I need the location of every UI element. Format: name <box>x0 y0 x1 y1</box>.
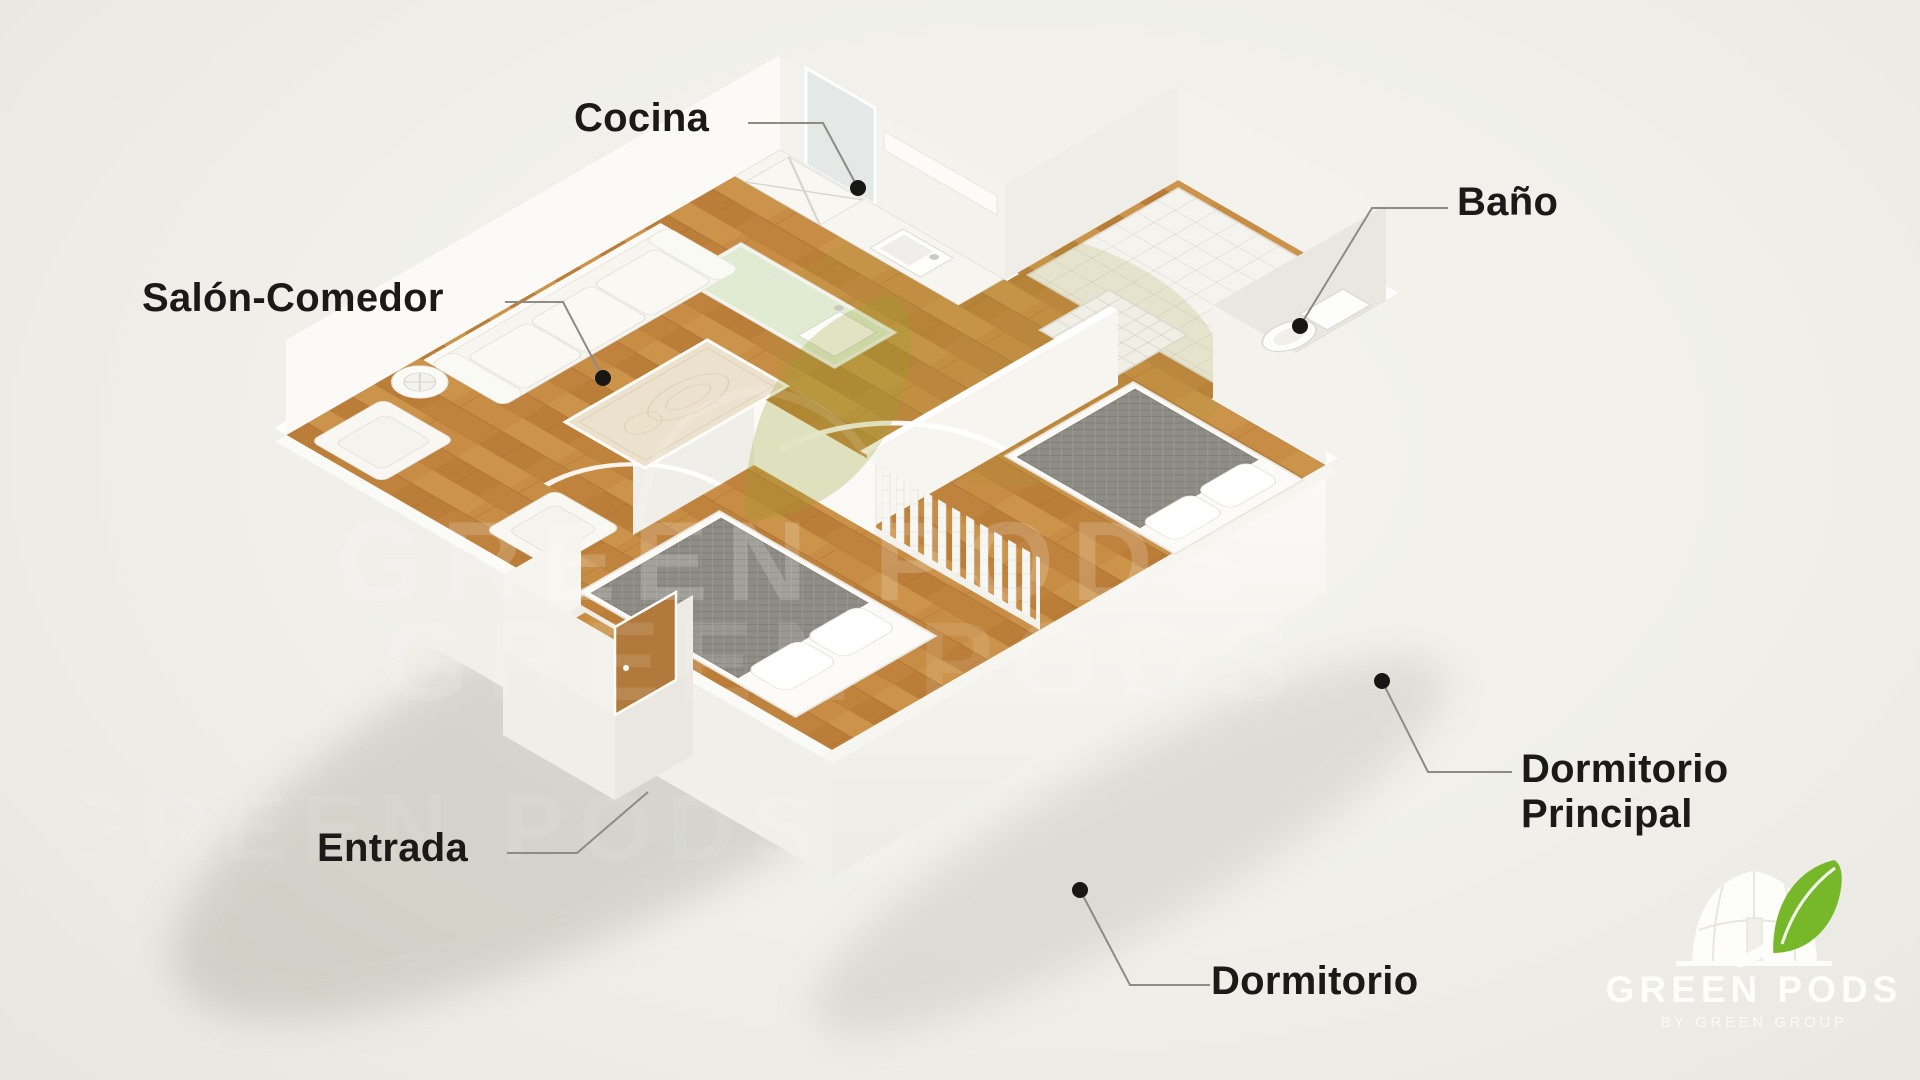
floorplan-illustration: GREEN PODS GREEN PODS GREEN PODS GREEN P… <box>0 0 1920 1080</box>
label-dormitorio: Dormitorio <box>1211 959 1418 1004</box>
label-entrada: Entrada <box>317 826 468 871</box>
marker-dot-bano <box>1292 318 1308 334</box>
label-bano: Baño <box>1457 180 1558 225</box>
marker-dot-dormitorio <box>1072 882 1088 898</box>
logo-name: GREEN PODS <box>1606 969 1903 1010</box>
logo-tagline: BY GREEN GROUP <box>1661 1014 1848 1031</box>
marker-dot-salon <box>595 370 611 386</box>
brand-logo: GREEN PODS BY GREEN GROUP <box>1606 860 1903 1031</box>
marker-dot-dormitorio-principal <box>1374 673 1390 689</box>
label-dormitorio-principal: Dormitorio Principal <box>1521 747 1821 837</box>
label-cocina: Cocina <box>574 96 709 141</box>
floorplan-scene: GREEN PODS GREEN PODS GREEN PODS GREEN P… <box>0 0 1920 1080</box>
label-salon-comedor: Salón-Comedor <box>142 276 444 321</box>
marker-dot-cocina <box>850 180 866 196</box>
watermark-text-2: GREEN PODS <box>382 599 1309 724</box>
